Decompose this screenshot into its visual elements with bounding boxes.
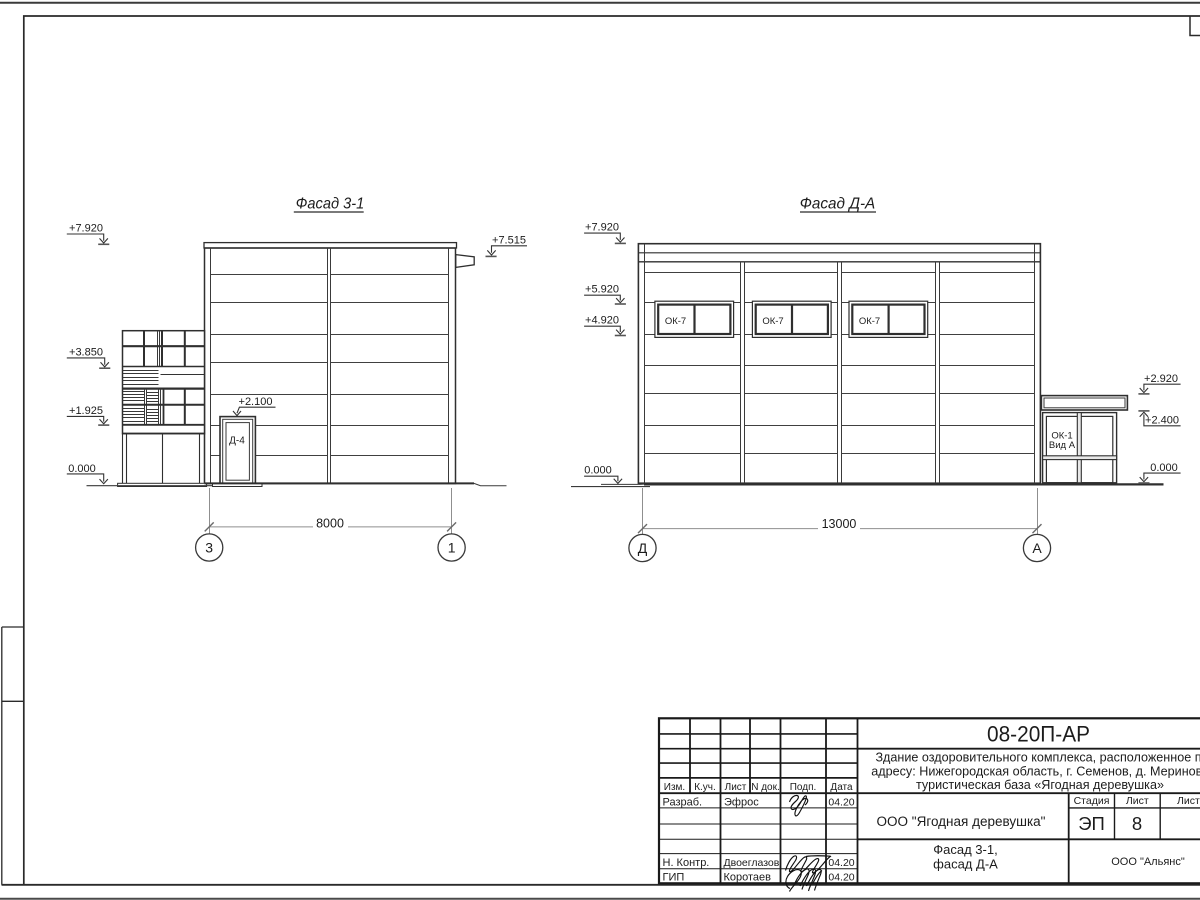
svg-text:ООО "Ягодная деревушка": ООО "Ягодная деревушка" (877, 814, 1046, 829)
svg-text:Вид А: Вид А (1049, 440, 1076, 451)
svg-text:ОК-7: ОК-7 (665, 316, 686, 327)
svg-text:адресу: Нижегородская область,: адресу: Нижегородская область, г. Семено… (871, 765, 1200, 779)
svg-text:04.20: 04.20 (828, 796, 854, 808)
svg-text:0.000: 0.000 (1150, 462, 1178, 474)
svg-text:А: А (1032, 540, 1042, 556)
svg-text:13000: 13000 (822, 517, 857, 531)
svg-text:0.000: 0.000 (584, 464, 612, 476)
svg-text:Н. Контр.: Н. Контр. (663, 857, 710, 869)
svg-text:Лист: Лист (725, 782, 747, 793)
svg-text:+2.920: +2.920 (1144, 373, 1178, 385)
svg-text:Д: Д (638, 540, 648, 556)
svg-text:8: 8 (1132, 813, 1142, 834)
svg-text:Эфрос: Эфрос (724, 796, 759, 808)
svg-text:Дата: Дата (830, 782, 853, 793)
svg-text:фасад Д-А: фасад Д-А (933, 857, 998, 872)
svg-text:Подп.: Подп. (790, 782, 817, 793)
svg-text:Разраб.: Разраб. (663, 796, 703, 808)
svg-text:+5.920: +5.920 (585, 283, 619, 295)
svg-text:+1.925: +1.925 (69, 405, 103, 417)
svg-text:+3.850: +3.850 (69, 346, 103, 358)
svg-text:Здание оздоровительного компле: Здание оздоровительного комплекса, распо… (875, 751, 1200, 765)
svg-text:Стадия: Стадия (1074, 795, 1110, 807)
svg-text:туристическая база «Ягодная де: туристическая база «Ягодная деревушка» (916, 778, 1164, 792)
svg-text:Д-4: Д-4 (229, 436, 245, 447)
svg-text:+2.400: +2.400 (1145, 414, 1179, 426)
svg-text:+2.100: +2.100 (239, 396, 273, 408)
svg-text:Изм.: Изм. (664, 782, 685, 793)
svg-text:Лист: Лист (1126, 795, 1149, 807)
svg-text:+7.920: +7.920 (69, 223, 103, 235)
svg-text:ОК-7: ОК-7 (859, 316, 880, 327)
svg-text:Фасад 3-1: Фасад 3-1 (296, 196, 365, 213)
svg-text:04.20: 04.20 (828, 872, 854, 884)
svg-text:+4.920: +4.920 (585, 314, 619, 326)
svg-text:+7.515: +7.515 (492, 234, 526, 246)
svg-text:Двоеглазов: Двоеглазов (724, 857, 780, 869)
svg-text:Фасад 3-1,: Фасад 3-1, (933, 842, 997, 857)
svg-text:Фасад Д-А: Фасад Д-А (800, 196, 876, 213)
svg-text:0.000: 0.000 (68, 463, 96, 475)
svg-text:8000: 8000 (316, 516, 344, 530)
svg-text:N док.: N док. (751, 782, 780, 793)
svg-text:К.уч.: К.уч. (694, 782, 716, 793)
svg-text:+7.920: +7.920 (585, 221, 619, 233)
svg-text:ООО "Альянс": ООО "Альянс" (1111, 856, 1185, 868)
svg-text:1: 1 (448, 540, 456, 556)
svg-text:08-20П-АР: 08-20П-АР (987, 721, 1090, 746)
svg-text:3: 3 (205, 540, 213, 556)
svg-text:ЭП: ЭП (1078, 813, 1105, 834)
svg-text:ГИП: ГИП (663, 872, 685, 884)
svg-text:ОК-7: ОК-7 (762, 316, 783, 327)
svg-text:04.20: 04.20 (828, 857, 854, 869)
svg-text:Листов: Листов (1177, 795, 1200, 807)
svg-text:Коротаев: Коротаев (724, 872, 772, 884)
